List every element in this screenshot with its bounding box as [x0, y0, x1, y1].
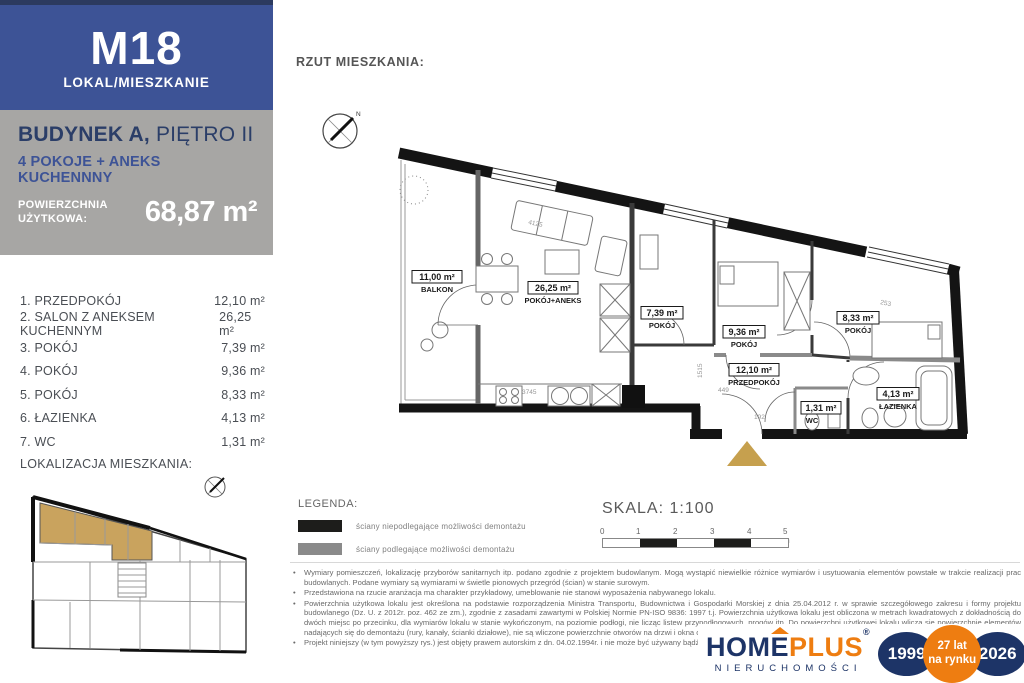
usable-area-value: 68,87 m²: [145, 196, 257, 229]
room-label: 3. POKÓJ: [20, 341, 78, 355]
wc-sink: [828, 414, 840, 428]
logo-plus: PLUS: [789, 632, 863, 662]
svg-text:3745: 3745: [522, 389, 537, 396]
scale-segment: [714, 539, 751, 547]
svg-text:1515: 1515: [697, 363, 704, 378]
room-list-row: 7. WC 1,31 m²: [20, 430, 265, 454]
unit-type-label: LOKAL/MIESZKANIE: [63, 75, 209, 90]
room-list-row: 5. POKÓJ 8,33 m²: [20, 383, 265, 407]
legend-label: ściany podlegające możliwości demontażu: [356, 545, 515, 554]
note-item: • Wymiary pomieszczeń, lokalizację przyb…: [293, 568, 1021, 587]
svg-text:ŁAZIENKA: ŁAZIENKA: [879, 402, 917, 411]
note-text: Przedstawiona na rzucie aranżacja ma cha…: [304, 588, 716, 597]
bullet: •: [293, 568, 296, 578]
room-list-row: 1. PRZEDPOKÓJ 12,10 m²: [20, 289, 265, 313]
room-area: 7,39 m²: [221, 341, 265, 355]
room-label: 2. SALON Z ANEKSEM KUCHENNYM: [20, 310, 219, 338]
scale-segment: [751, 539, 788, 547]
svg-text:POKÓJ+ANEKS: POKÓJ+ANEKS: [525, 296, 582, 305]
registered-mark: ®: [863, 627, 870, 637]
svg-text:9,36 m²: 9,36 m²: [728, 327, 759, 337]
agency-logo: HOMEPLUS® NIERUCHOMOŚCI 1999 27 lat na r…: [698, 624, 1024, 683]
room-area: 1,31 m²: [221, 435, 265, 449]
notes-divider: [290, 562, 1020, 563]
room-list-row: 2. SALON Z ANEKSEM KUCHENNYM 26,25 m²: [20, 313, 265, 337]
bullet: •: [293, 638, 296, 648]
badge-anniversary: 27 lat na rynku: [923, 625, 981, 683]
room-list: 1. PRZEDPOKÓJ 12,10 m² 2. SALON Z ANEKSE…: [20, 289, 265, 454]
svg-text:POKÓJ: POKÓJ: [731, 340, 757, 349]
room-label: 6. ŁAZIENKA: [20, 411, 97, 425]
scale-tick: 4: [747, 527, 751, 536]
svg-text:BALKON: BALKON: [421, 285, 453, 294]
logo-e-letter: E: [771, 632, 790, 662]
scale-bar: 0 1 2 3 4 5 m: [602, 527, 792, 549]
room-label-pokoj-aneks: 26,25 m² POKÓJ+ANEKS: [525, 282, 582, 306]
svg-text:253: 253: [880, 299, 892, 308]
note-item: • Przedstawiona na rzucie aranżacja ma c…: [293, 588, 1021, 598]
building-name: BUDYNEK A,: [18, 123, 150, 146]
scale-tick: 2: [673, 527, 677, 536]
bath-toilet: [862, 408, 878, 428]
svg-text:WC: WC: [806, 416, 819, 425]
scale-tick: 1: [636, 527, 640, 536]
badge-line1: 27 lat: [937, 640, 966, 653]
usable-area-row: POWIERZCHNIA UŻYTKOWA: 68,87 m²: [18, 199, 257, 229]
legend-swatch-removable-walls: [298, 543, 342, 555]
structural-pillar: [622, 385, 645, 408]
location-mini-map: [10, 468, 270, 683]
unit-header: M18 LOKAL/MIESZKANIE: [0, 5, 273, 110]
svg-text:449: 449: [718, 387, 729, 394]
floor-name: PIĘTRO II: [150, 123, 254, 146]
room-label-przedpokoj: 12,10 m² PRZEDPOKÓJ: [728, 364, 780, 388]
balcony-plant: [400, 176, 428, 204]
room-list-row: 6. ŁAZIENKA 4,13 m²: [20, 407, 265, 431]
room-label-balkon: 11,00 m² BALKON: [412, 271, 462, 295]
svg-text:POKÓJ: POKÓJ: [845, 326, 871, 335]
scale-segment: [677, 539, 714, 547]
bullet: •: [293, 588, 296, 598]
compass-icon: N: [323, 111, 361, 148]
legend-item: ściany niepodlegające możliwości demonta…: [298, 520, 526, 532]
room-label: 1. PRZEDPOKÓJ: [20, 294, 121, 308]
room-area: 12,10 m²: [214, 294, 265, 308]
room-area: 26,25 m²: [219, 310, 265, 338]
room-area: 9,36 m²: [221, 364, 265, 378]
logo-word: HOMEPLUS®: [706, 634, 870, 661]
scale-label: SKALA: 1:100: [602, 500, 715, 518]
plan-section-title: RZUT MIESZKANIA:: [296, 55, 424, 69]
room-area: 8,33 m²: [221, 388, 265, 402]
unit-summary: BUDYNEK A, PIĘTRO II 4 POKOJE + ANEKS KU…: [0, 110, 273, 255]
svg-text:12,10 m²: 12,10 m²: [736, 365, 772, 375]
scale-ticks: 0 1 2 3 4 5 m: [602, 527, 792, 537]
bullet: •: [293, 599, 296, 609]
room-label: 5. POKÓJ: [20, 388, 78, 402]
legend-item: ściany podlegające możliwości demontażu: [298, 543, 515, 555]
scale-segment: [603, 539, 640, 547]
floor-plan: N: [280, 85, 1024, 485]
legend-label: ściany niepodlegające możliwości demonta…: [356, 522, 526, 531]
layout-line: 4 POKOJE + ANEKS KUCHENNNY: [18, 154, 257, 186]
scale-segment: [640, 539, 677, 547]
compass-north-label: N: [356, 111, 361, 118]
logo-wordmark: HOMEPLUS® NIERUCHOMOŚCI: [706, 634, 870, 674]
logo-e: E: [771, 634, 790, 661]
room-label-lazienka: 4,13 m² ŁAZIENKA: [877, 388, 919, 412]
entrance-arrow: [727, 441, 767, 466]
legend-title: LEGENDA:: [298, 498, 358, 510]
svg-text:192: 192: [754, 414, 765, 421]
roof-icon: [771, 627, 789, 634]
unit-id: M18: [90, 25, 182, 71]
svg-text:7,39 m²: 7,39 m²: [646, 308, 677, 318]
logo-home: HOM: [706, 632, 771, 662]
building-floor-line: BUDYNEK A, PIĘTRO II: [18, 123, 257, 147]
svg-text:11,00 m²: 11,00 m²: [419, 272, 455, 282]
anniversary-badges: 1999 27 lat na rynku 2026: [878, 625, 1024, 683]
svg-text:PRZEDPOKÓJ: PRZEDPOKÓJ: [728, 378, 780, 387]
svg-text:4,13 m²: 4,13 m²: [882, 389, 913, 399]
room-label-pokoj-739: 7,39 m² POKÓJ: [641, 307, 683, 331]
room-area: 4,13 m²: [221, 411, 265, 425]
legend-swatch-solid-walls: [298, 520, 342, 532]
bath-sink: [853, 367, 879, 385]
svg-text:8,33 m²: 8,33 m²: [842, 313, 873, 323]
svg-text:1,31 m²: 1,31 m²: [805, 403, 836, 413]
room-label-pokoj-936: 9,36 m² POKÓJ: [723, 326, 765, 350]
compass-icon: [205, 477, 225, 497]
room-list-row: 4. POKÓJ 9,36 m²: [20, 360, 265, 384]
badge-line2: na rynku: [928, 654, 976, 667]
logo-subtitle: NIERUCHOMOŚCI: [715, 663, 862, 674]
usable-area-label: POWIERZCHNIA UŻYTKOWA:: [18, 199, 118, 227]
scale-tick: 0: [600, 527, 604, 536]
svg-text:26,25 m²: 26,25 m²: [535, 283, 571, 293]
scale-bar-segments: [602, 538, 789, 548]
svg-text:POKÓJ: POKÓJ: [649, 321, 675, 330]
room-label: 4. POKÓJ: [20, 364, 78, 378]
room-list-row: 3. POKÓJ 7,39 m²: [20, 336, 265, 360]
room-label: 7. WC: [20, 435, 56, 449]
scale-tick: 3: [710, 527, 714, 536]
note-text: Wymiary pomieszczeń, lokalizację przybor…: [304, 568, 1021, 587]
